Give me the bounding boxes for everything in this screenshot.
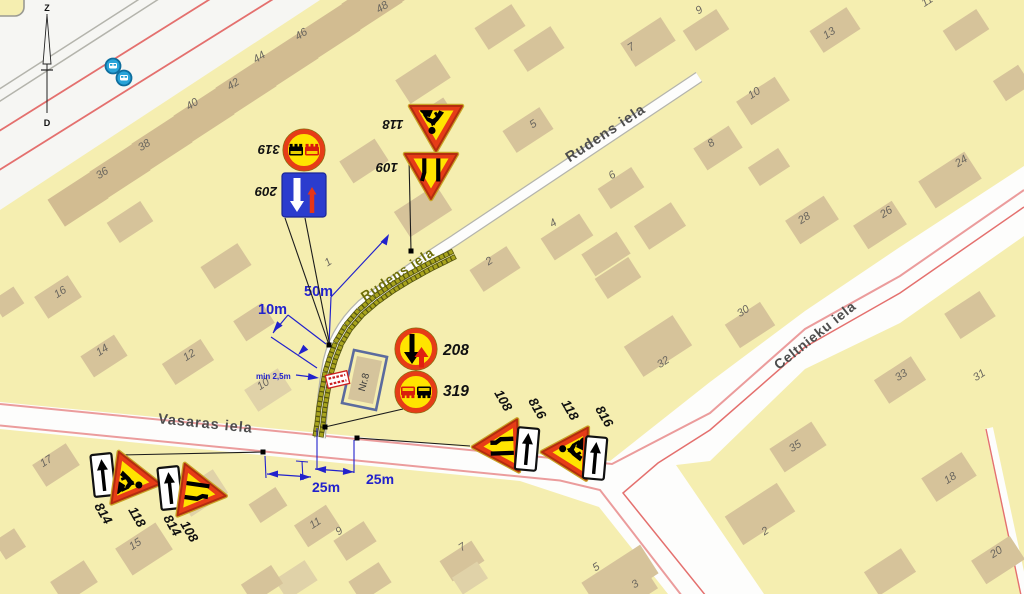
svg-text:319: 319 — [257, 142, 280, 157]
svg-text:208: 208 — [442, 342, 469, 359]
svg-text:209: 209 — [254, 184, 278, 199]
svg-text:10m: 10m — [258, 302, 287, 318]
svg-text:109: 109 — [375, 160, 398, 175]
svg-text:118: 118 — [382, 117, 404, 132]
svg-text:319: 319 — [443, 383, 469, 400]
svg-text:25m: 25m — [312, 479, 340, 495]
svg-text:25m: 25m — [366, 471, 394, 487]
svg-text:min 2,5m: min 2,5m — [256, 372, 291, 381]
svg-text:D: D — [44, 118, 51, 128]
svg-text:Z: Z — [44, 3, 50, 13]
